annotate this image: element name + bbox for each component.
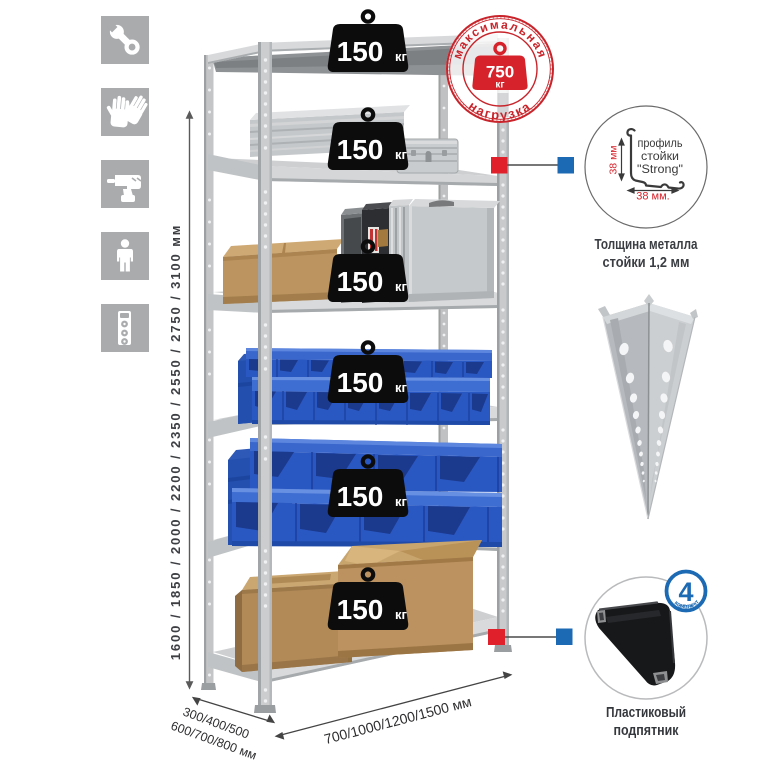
svg-text:"Strong": "Strong" [637, 162, 683, 176]
svg-text:38 мм.: 38 мм. [636, 191, 669, 203]
svg-text:150: 150 [337, 134, 384, 165]
svg-text:кг: кг [495, 80, 504, 91]
svg-text:профиль: профиль [638, 136, 683, 150]
svg-text:кг: кг [395, 279, 408, 294]
svg-text:Пластиковый: Пластиковый [606, 704, 686, 721]
svg-text:кг: кг [395, 607, 408, 622]
svg-text:штуки: штуки [678, 604, 693, 610]
svg-text:38 мм: 38 мм [608, 145, 620, 174]
svg-text:150: 150 [337, 594, 384, 625]
svg-text:кг: кг [395, 147, 408, 162]
svg-text:кг: кг [395, 49, 408, 64]
svg-text:кг: кг [395, 494, 408, 509]
svg-text:стойки 1,2 мм: стойки 1,2 мм [603, 255, 690, 271]
svg-text:подпятник: подпятник [614, 722, 679, 739]
svg-text:150: 150 [337, 36, 384, 67]
svg-text:кг: кг [395, 380, 408, 395]
svg-text:700/1000/1200/1500 мм: 700/1000/1200/1500 мм [322, 693, 473, 747]
svg-text:150: 150 [337, 481, 384, 512]
svg-text:150: 150 [337, 367, 384, 398]
svg-text:стойки: стойки [641, 149, 679, 163]
svg-text:1600 / 1850 / 2000 / 2200 / 23: 1600 / 1850 / 2000 / 2200 / 2350 / 2550 … [168, 224, 183, 660]
svg-text:4: 4 [678, 577, 693, 607]
svg-text:150: 150 [337, 266, 384, 297]
svg-text:Толщина металла: Толщина металла [595, 237, 699, 253]
